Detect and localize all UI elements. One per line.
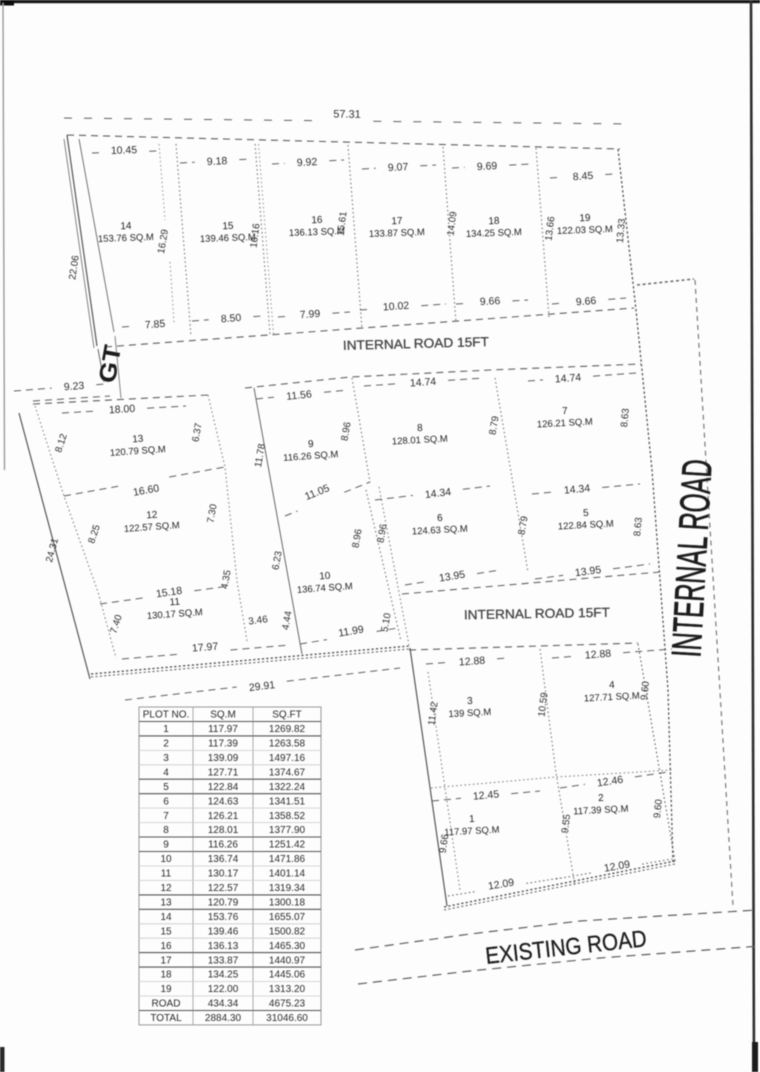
svg-text:13: 13	[160, 898, 172, 909]
svg-text:122.03 SQ.M: 122.03 SQ.M	[557, 224, 613, 237]
svg-text:1322.24: 1322.24	[269, 782, 306, 793]
svg-text:PLOT NO.: PLOT NO.	[143, 710, 190, 721]
svg-text:9.60: 9.60	[639, 680, 652, 701]
svg-text:14.74: 14.74	[554, 372, 581, 386]
svg-text:122.84: 122.84	[208, 782, 239, 793]
svg-text:INTERNAL ROAD 15FT: INTERNAL ROAD 15FT	[464, 605, 610, 623]
svg-text:9.66: 9.66	[479, 295, 500, 308]
svg-text:13.33: 13.33	[615, 218, 628, 244]
svg-text:12.88: 12.88	[458, 655, 485, 669]
svg-text:136.13: 136.13	[208, 941, 239, 952]
svg-text:1269.82: 1269.82	[269, 724, 306, 735]
svg-text:10.02: 10.02	[383, 300, 410, 314]
svg-text:13: 13	[132, 434, 144, 446]
svg-text:1465.30: 1465.30	[269, 941, 306, 952]
svg-text:139.09: 139.09	[208, 753, 239, 764]
svg-text:1500.82: 1500.82	[269, 926, 306, 937]
svg-text:TOTAL: TOTAL	[150, 1013, 182, 1024]
svg-text:15: 15	[222, 221, 234, 232]
svg-text:153.76 SQ.M: 153.76 SQ.M	[98, 232, 154, 245]
svg-text:12.45: 12.45	[472, 788, 499, 802]
svg-text:1358.52: 1358.52	[269, 811, 306, 822]
svg-text:9.23: 9.23	[63, 380, 84, 394]
svg-text:14: 14	[120, 221, 132, 232]
svg-text:3: 3	[163, 753, 169, 764]
svg-text:1471.86: 1471.86	[269, 854, 306, 865]
svg-text:4: 4	[163, 767, 169, 778]
svg-text:ROAD: ROAD	[152, 999, 181, 1010]
svg-text:128.01: 128.01	[208, 825, 239, 836]
svg-text:7: 7	[562, 406, 569, 417]
svg-text:8: 8	[163, 825, 169, 836]
svg-text:117.39: 117.39	[208, 739, 238, 750]
svg-text:14.34: 14.34	[563, 482, 590, 496]
svg-text:8: 8	[417, 423, 424, 434]
svg-text:17: 17	[160, 955, 172, 966]
svg-text:7.85: 7.85	[144, 318, 165, 331]
svg-text:1313.20: 1313.20	[269, 984, 306, 995]
svg-text:134.25: 134.25	[208, 970, 239, 981]
svg-text:9.69: 9.69	[477, 160, 498, 173]
svg-text:16: 16	[160, 941, 172, 952]
svg-text:117.97: 117.97	[208, 724, 238, 735]
svg-text:12: 12	[146, 510, 158, 522]
svg-text:133.87 SQ.M: 133.87 SQ.M	[369, 227, 425, 240]
svg-text:130.17: 130.17	[208, 869, 239, 880]
svg-text:136.74: 136.74	[208, 854, 239, 865]
svg-text:SQ.M: SQ.M	[210, 710, 236, 721]
svg-text:6: 6	[437, 513, 444, 524]
svg-text:1374.67: 1374.67	[269, 767, 306, 778]
svg-text:16: 16	[311, 215, 323, 226]
svg-text:1341.51: 1341.51	[269, 796, 306, 807]
svg-text:7.99: 7.99	[299, 308, 320, 321]
svg-text:139.46: 139.46	[208, 926, 239, 937]
svg-text:15: 15	[160, 926, 172, 937]
svg-text:4: 4	[609, 680, 616, 691]
svg-text:3: 3	[467, 696, 474, 707]
svg-text:1263.58: 1263.58	[269, 739, 306, 750]
svg-text:5: 5	[163, 782, 169, 793]
svg-text:14: 14	[160, 912, 172, 923]
svg-text:5: 5	[583, 508, 590, 519]
svg-text:1300.18: 1300.18	[269, 898, 306, 909]
svg-text:1377.90: 1377.90	[269, 825, 306, 836]
svg-text:8.63: 8.63	[632, 516, 645, 537]
svg-text:11: 11	[161, 869, 172, 880]
svg-text:127.71: 127.71	[208, 767, 239, 778]
svg-text:17: 17	[391, 216, 403, 227]
svg-text:2: 2	[598, 793, 605, 804]
svg-text:18: 18	[160, 970, 172, 981]
svg-text:8.50: 8.50	[220, 312, 241, 325]
svg-text:133.87: 133.87	[208, 955, 239, 966]
svg-text:122.57: 122.57	[208, 883, 239, 894]
svg-text:6: 6	[163, 796, 169, 807]
svg-text:12.88: 12.88	[584, 648, 611, 662]
svg-text:12: 12	[160, 883, 172, 894]
svg-text:9.18: 9.18	[206, 155, 227, 168]
svg-text:31046.60: 31046.60	[266, 1013, 308, 1024]
svg-text:8.45: 8.45	[572, 170, 593, 183]
svg-text:1: 1	[469, 814, 476, 825]
svg-text:9.92: 9.92	[296, 156, 317, 169]
svg-text:11: 11	[169, 597, 181, 609]
svg-text:4675.23: 4675.23	[269, 999, 306, 1010]
svg-text:14.74: 14.74	[410, 376, 437, 390]
svg-text:9: 9	[163, 840, 169, 851]
svg-text:1319.34: 1319.34	[269, 883, 306, 894]
svg-text:8.63: 8.63	[619, 407, 632, 428]
svg-text:116.26: 116.26	[208, 840, 238, 851]
svg-text:1445.06: 1445.06	[269, 970, 306, 981]
svg-text:18: 18	[488, 216, 500, 227]
svg-text:9.60: 9.60	[652, 798, 665, 819]
svg-text:17.97: 17.97	[191, 641, 218, 655]
svg-text:SQ.FT: SQ.FT	[272, 710, 301, 721]
svg-text:139.46 SQ.M: 139.46 SQ.M	[200, 232, 256, 245]
svg-text:134.25 SQ.M: 134.25 SQ.M	[466, 227, 522, 240]
svg-text:7: 7	[163, 811, 169, 822]
svg-text:1655.07: 1655.07	[269, 912, 306, 923]
svg-text:9.66: 9.66	[575, 295, 596, 309]
svg-text:139 SQ.M: 139 SQ.M	[448, 707, 491, 720]
svg-text:1401.14: 1401.14	[269, 869, 306, 880]
svg-text:126.21: 126.21	[208, 811, 239, 822]
svg-text:1: 1	[163, 724, 169, 735]
svg-text:18.00: 18.00	[109, 403, 136, 416]
svg-text:2: 2	[163, 739, 169, 750]
svg-text:57.31: 57.31	[333, 109, 361, 121]
svg-text:10: 10	[160, 854, 172, 865]
svg-text:11.56: 11.56	[286, 388, 313, 402]
svg-text:1251.42: 1251.42	[269, 840, 306, 851]
svg-text:153.76: 153.76	[208, 912, 239, 923]
svg-text:1440.97: 1440.97	[269, 955, 306, 966]
svg-text:9.07: 9.07	[388, 161, 409, 174]
svg-text:10: 10	[319, 571, 331, 583]
svg-text:120.79: 120.79	[208, 898, 239, 909]
svg-text:19: 19	[579, 213, 591, 224]
svg-text:1497.16: 1497.16	[269, 753, 306, 764]
svg-text:19: 19	[160, 984, 172, 995]
svg-text:124.63: 124.63	[208, 796, 239, 807]
svg-text:434.34: 434.34	[208, 999, 239, 1010]
svg-text:10.45: 10.45	[111, 144, 138, 157]
svg-text:2884.30: 2884.30	[205, 1013, 242, 1024]
svg-text:122.00: 122.00	[208, 984, 239, 995]
